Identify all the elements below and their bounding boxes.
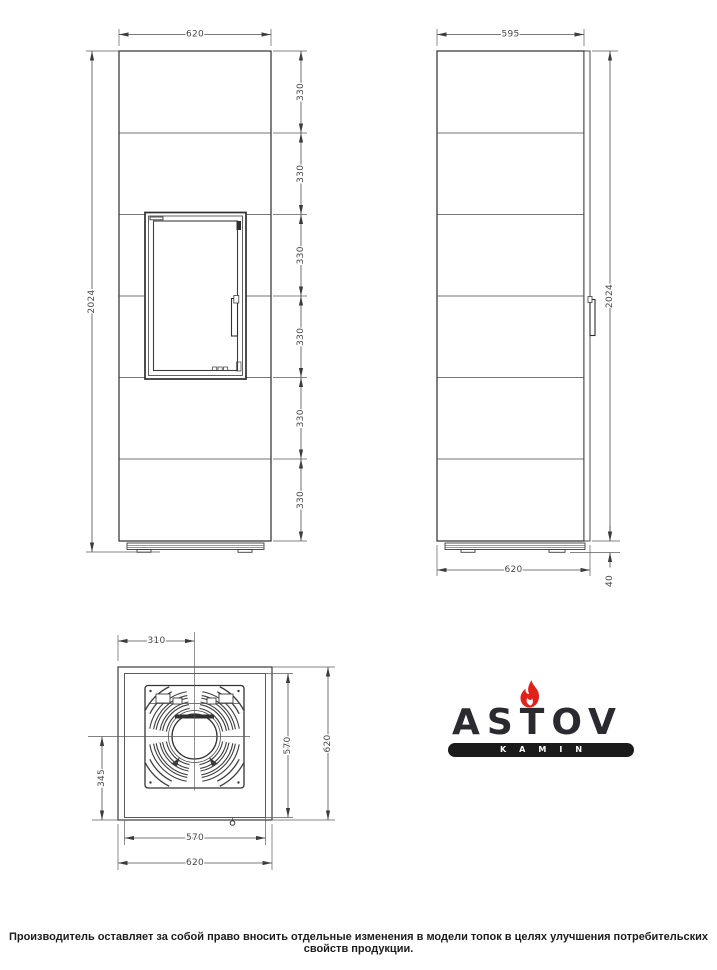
door-handle — [232, 299, 238, 337]
front-fire-door — [145, 213, 246, 380]
dim-front-height: 2024 — [87, 289, 97, 313]
side-view: 595 2024 40 620 — [437, 29, 620, 587]
dim-flue-offset: 310 — [147, 636, 165, 646]
door-outer-frame — [145, 213, 246, 380]
disclaimer-text: Производитель оставляет за собой право в… — [0, 931, 717, 955]
dim-side-base-height: 40 — [605, 575, 615, 587]
brand-subtitle: KAMIN — [500, 745, 595, 754]
dim-segment-1: 330 — [296, 83, 306, 101]
door-hinge-top — [150, 217, 163, 220]
front-base — [127, 543, 264, 552]
dim-inner-depth: 570 — [283, 736, 293, 754]
astov-logo: ASTOV KAMIN — [448, 682, 634, 758]
dim-inner-width: 570 — [186, 833, 204, 843]
dim-outer-width: 620 — [186, 858, 204, 868]
door-handle-pivot — [234, 296, 239, 304]
dim-outer-depth: 620 — [323, 734, 333, 752]
dim-side-height: 2024 — [605, 284, 615, 308]
top-view: 310 345 570 620 570 620 — [88, 632, 335, 870]
dim-segment-4: 330 — [296, 328, 306, 346]
brand-name: ASTOV — [452, 704, 623, 742]
dim-side-base-depth: 620 — [504, 565, 522, 575]
front-view: 620 2024 330 330 330 330 330 330 — [86, 29, 307, 552]
side-front-panel — [584, 51, 590, 541]
door-latch-top — [237, 221, 242, 230]
grille-tab-right — [219, 694, 233, 703]
side-base — [445, 543, 585, 552]
technical-drawing-page: 620 2024 330 330 330 330 330 330 — [0, 0, 717, 970]
top-handle-knob — [230, 821, 235, 826]
side-door-handle — [590, 300, 595, 336]
side-handle-pivot — [588, 297, 592, 303]
dim-side-depth: 595 — [501, 30, 519, 40]
brand-subtitle-bar: KAMIN — [448, 743, 634, 757]
dim-segment-6: 330 — [296, 491, 306, 509]
dim-segment-5: 330 — [296, 409, 306, 427]
dim-segment-2: 330 — [296, 165, 306, 183]
dim-flue-to-front: 345 — [97, 769, 107, 787]
dim-segment-3: 330 — [296, 246, 306, 264]
grille-tab-left — [156, 694, 170, 703]
dim-front-width: 620 — [186, 30, 204, 40]
stove-drawing: 620 2024 330 330 330 330 330 330 — [0, 0, 717, 920]
